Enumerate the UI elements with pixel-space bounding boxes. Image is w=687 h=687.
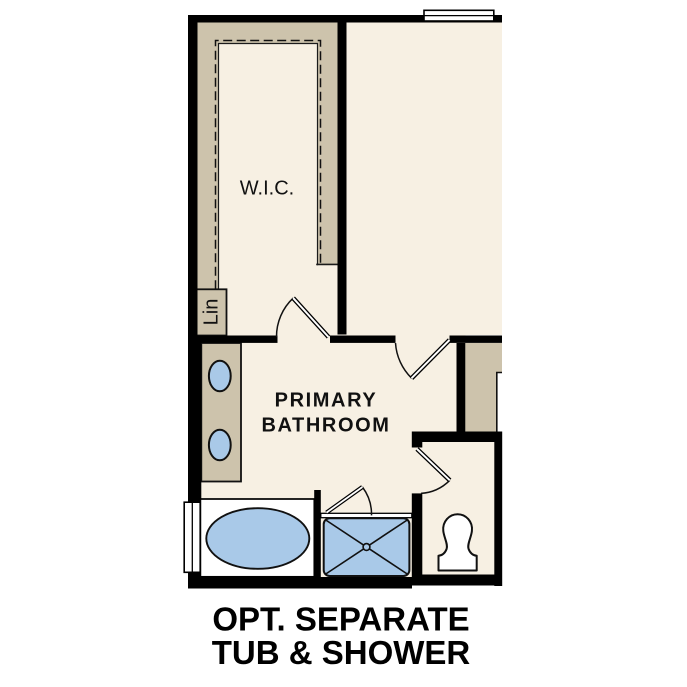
svg-text:BATHROOM: BATHROOM — [261, 415, 390, 437]
svg-text:Lin: Lin — [201, 299, 223, 326]
svg-text:W.I.C.: W.I.C. — [240, 178, 294, 200]
svg-text:PRIMARY: PRIMARY — [275, 390, 378, 412]
svg-text:OPT. SEPARATE: OPT. SEPARATE — [212, 601, 469, 638]
svg-text:TUB & SHOWER: TUB & SHOWER — [212, 634, 471, 671]
